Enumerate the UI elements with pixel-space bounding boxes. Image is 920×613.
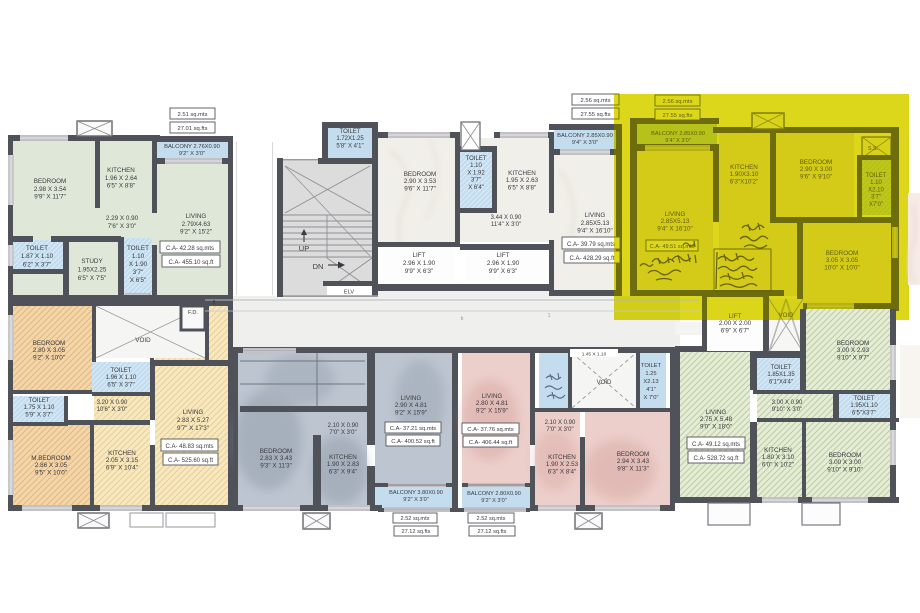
- svg-text:6'5" X 8'8": 6'5" X 8'8": [107, 183, 136, 190]
- svg-text:2.98 X 3.54: 2.98 X 3.54: [34, 186, 67, 193]
- svg-text:TOILET: TOILET: [771, 365, 792, 371]
- svg-text:3.00 X 3.00: 3.00 X 3.00: [829, 459, 862, 466]
- svg-text:9'7" X 17'3": 9'7" X 17'3": [177, 425, 209, 432]
- svg-text:2.85X5.13: 2.85X5.13: [581, 220, 610, 227]
- svg-text:27.12 sq.fts: 27.12 sq.fts: [402, 529, 431, 535]
- svg-text:1.72X1.25: 1.72X1.25: [336, 136, 364, 142]
- svg-text:LIVING: LIVING: [186, 213, 207, 220]
- svg-text:2.29 X 0.90: 2.29 X 0.90: [106, 215, 139, 222]
- svg-text:9'0" X 18'0": 9'0" X 18'0": [700, 423, 732, 430]
- svg-text:3.20 X 0.90: 3.20 X 0.90: [97, 400, 128, 406]
- svg-text:C.A- 37.76 sq.mts: C.A- 37.76 sq.mts: [467, 427, 513, 433]
- svg-text:2.94 X 3.43: 2.94 X 3.43: [617, 458, 650, 465]
- svg-text:2.90 X 4.81: 2.90 X 4.81: [395, 402, 428, 409]
- svg-text:27.12 sq.fts: 27.12 sq.fts: [478, 529, 507, 535]
- svg-text:6'5" X 3'7": 6'5" X 3'7": [107, 382, 134, 388]
- svg-text:6'2" X 3'7": 6'2" X 3'7": [23, 261, 52, 268]
- svg-text:9'8" X 11'3": 9'8" X 11'3": [617, 465, 649, 472]
- svg-text:6'5" X 7'5": 6'5" X 7'5": [78, 275, 107, 282]
- svg-text:UP: UP: [299, 244, 309, 253]
- svg-text:2.90 X 3.53: 2.90 X 3.53: [404, 178, 437, 185]
- svg-text:TOILET: TOILET: [127, 245, 149, 252]
- svg-text:2.79X4.63: 2.79X4.63: [182, 221, 211, 228]
- svg-text:X 6'5": X 6'5": [130, 277, 146, 284]
- svg-text:BEDROOM: BEDROOM: [617, 451, 650, 458]
- svg-text:7'6" X 3'0": 7'6" X 3'0": [108, 223, 137, 230]
- svg-text:1.96 X 2.64: 1.96 X 2.64: [105, 175, 138, 182]
- svg-text:2.51 sq.mts: 2.51 sq.mts: [178, 112, 208, 118]
- svg-text:1.75 X 1.10: 1.75 X 1.10: [24, 405, 55, 411]
- svg-text:1.45 X 1.10: 1.45 X 1.10: [582, 352, 607, 358]
- svg-text:C.A- 42.28 sq.mts: C.A- 42.28 sq.mts: [166, 246, 214, 252]
- svg-text:C.A- 49.12 sq.mts: C.A- 49.12 sq.mts: [692, 442, 740, 448]
- svg-text:2.86 X 3.05: 2.86 X 3.05: [35, 462, 68, 469]
- svg-text:9'9" X 6'3": 9'9" X 6'3": [405, 268, 434, 275]
- svg-text:6'3" X 9'4": 6'3" X 9'4": [329, 468, 358, 475]
- svg-text:LIVING: LIVING: [706, 409, 727, 416]
- svg-text:C.A- 400.52 sq.ft: C.A- 400.52 sq.ft: [391, 439, 435, 445]
- svg-text:9'10" X 9'7": 9'10" X 9'7": [837, 354, 869, 361]
- svg-text:X 1.92: X 1.92: [467, 170, 485, 176]
- svg-text:2.80 X 3.05: 2.80 X 3.05: [33, 347, 66, 354]
- svg-text:X 7'0": X 7'0": [643, 395, 658, 401]
- svg-text:1.80 X 3.10: 1.80 X 3.10: [762, 454, 795, 461]
- svg-text:BALCONY 2.76X0.90: BALCONY 2.76X0.90: [164, 144, 220, 150]
- svg-text:2.96 X 1.90: 2.96 X 1.90: [487, 260, 520, 267]
- svg-text:b: b: [461, 316, 464, 322]
- svg-text:C.A- 48.83 sq.mts: C.A- 48.83 sq.mts: [165, 444, 213, 450]
- svg-text:LIVING: LIVING: [482, 393, 503, 400]
- svg-text:9'2" X 3'0": 9'2" X 3'0": [481, 498, 506, 504]
- svg-text:9'2" X 10'0": 9'2" X 10'0": [33, 354, 65, 361]
- svg-text:2.10 X 0.90: 2.10 X 0.90: [328, 423, 359, 429]
- svg-text:5'9" X 3'7": 5'9" X 3'7": [25, 412, 52, 418]
- svg-text:9'3" X 11'3": 9'3" X 11'3": [260, 462, 292, 469]
- svg-text:2.83 X 5.27: 2.83 X 5.27: [177, 417, 210, 424]
- svg-text:TOILET: TOILET: [641, 363, 662, 369]
- svg-text:6'1"X4'4": 6'1"X4'4": [769, 379, 793, 385]
- svg-text:4'1": 4'1": [646, 387, 656, 393]
- svg-text:1.10: 1.10: [470, 163, 482, 169]
- svg-text:2.80 X 4.81: 2.80 X 4.81: [476, 400, 509, 407]
- svg-text:C.A- 428.29 sq.ft: C.A- 428.29 sq.ft: [569, 256, 614, 262]
- svg-text:6'9" X 6'7": 6'9" X 6'7": [721, 327, 750, 334]
- svg-text:X2.13: X2.13: [643, 379, 658, 385]
- svg-text:27.01 sq.fts: 27.01 sq.fts: [178, 126, 208, 132]
- svg-text:TOILET: TOILET: [111, 368, 132, 374]
- svg-text:9'2" X 15'2": 9'2" X 15'2": [180, 229, 212, 236]
- svg-text:F.D.: F.D.: [188, 310, 198, 316]
- svg-text:C.A- 455.10 sq.ft: C.A- 455.10 sq.ft: [168, 260, 213, 266]
- svg-text:6'0" X 10'2": 6'0" X 10'2": [762, 461, 794, 468]
- svg-text:LIVING: LIVING: [183, 409, 204, 416]
- svg-text:11'4" X 3'0": 11'4" X 3'0": [491, 222, 521, 228]
- svg-text:1.25: 1.25: [645, 371, 656, 377]
- svg-text:DN: DN: [313, 262, 324, 271]
- svg-text:BALCONY 2.80X0.90: BALCONY 2.80X0.90: [467, 491, 521, 497]
- svg-text:LIVING: LIVING: [401, 395, 422, 402]
- svg-text:KITCHEN: KITCHEN: [108, 450, 136, 457]
- svg-text:1: 1: [548, 313, 551, 319]
- svg-text:9'2" X 3'0": 9'2" X 3'0": [179, 151, 205, 157]
- svg-text:9'2" X 15'9": 9'2" X 15'9": [395, 409, 427, 416]
- svg-text:1.95X1.10: 1.95X1.10: [850, 403, 878, 409]
- svg-text:C.A- 525.60 sq.ft: C.A- 525.60 sq.ft: [168, 458, 213, 464]
- svg-text:BEDROOM: BEDROOM: [404, 171, 437, 178]
- svg-text:6'5"X3'7": 6'5"X3'7": [852, 410, 876, 416]
- svg-text:BEDROOM: BEDROOM: [33, 340, 66, 347]
- svg-text:9'4" X 3'0": 9'4" X 3'0": [572, 140, 598, 146]
- svg-text:9'9" X 6'3": 9'9" X 6'3": [489, 268, 518, 275]
- svg-text:9'9" X 11'7": 9'9" X 11'7": [34, 194, 66, 201]
- svg-text:M.BEDROOM: M.BEDROOM: [31, 455, 71, 462]
- svg-text:2.56 sq.mts: 2.56 sq.mts: [581, 98, 611, 104]
- svg-text:X 1.90: X 1.90: [129, 261, 148, 268]
- svg-text:LIVING: LIVING: [585, 212, 606, 219]
- svg-text:KITCHEN: KITCHEN: [548, 454, 576, 461]
- svg-text:9'10" X 3'0": 9'10" X 3'0": [772, 407, 803, 413]
- svg-text:2.52 sq.mts: 2.52 sq.mts: [477, 516, 506, 522]
- svg-text:2.05 X 3.15: 2.05 X 3.15: [106, 457, 139, 464]
- svg-text:TOILET: TOILET: [29, 398, 50, 404]
- svg-text:2.83 X 3.43: 2.83 X 3.43: [260, 455, 293, 462]
- svg-text:9'2" X 15'9": 9'2" X 15'9": [476, 407, 508, 414]
- svg-text:STUDY: STUDY: [81, 258, 103, 265]
- svg-text:3.00 X 2.93: 3.00 X 2.93: [837, 347, 870, 354]
- svg-text:3.44 X 0.90: 3.44 X 0.90: [491, 215, 522, 221]
- svg-text:C.A- 528.72 sq.ft: C.A- 528.72 sq.ft: [693, 456, 738, 462]
- svg-text:3'7": 3'7": [133, 269, 143, 276]
- svg-text:6'9" X 10'4": 6'9" X 10'4": [106, 464, 138, 471]
- svg-text:1.85X1.35: 1.85X1.35: [767, 372, 795, 378]
- svg-text:C.A- 406.44 sq.ft: C.A- 406.44 sq.ft: [469, 440, 513, 446]
- svg-text:ELV: ELV: [344, 290, 354, 296]
- svg-text:1.87 X 1.10: 1.87 X 1.10: [21, 253, 54, 260]
- svg-text:VOID: VOID: [597, 380, 612, 386]
- svg-text:6'3" X 8'4": 6'3" X 8'4": [548, 468, 577, 475]
- svg-text:3'7": 3'7": [471, 178, 481, 184]
- svg-text:BALCONY 3.80X0.90: BALCONY 3.80X0.90: [389, 490, 443, 496]
- svg-text:C.A- 39.79 sq.mts: C.A- 39.79 sq.mts: [567, 242, 615, 248]
- svg-text:LIFT: LIFT: [413, 252, 426, 259]
- svg-text:1.10: 1.10: [132, 253, 145, 260]
- svg-text:2.75 X 5.48: 2.75 X 5.48: [700, 416, 733, 423]
- svg-text:1.96 X 1.10: 1.96 X 1.10: [106, 375, 137, 381]
- svg-text:VOID: VOID: [135, 337, 151, 344]
- svg-text:TOILET: TOILET: [26, 245, 48, 252]
- svg-text:BEDROOM: BEDROOM: [829, 452, 862, 459]
- svg-text:10'6" X 3'0": 10'6" X 3'0": [97, 407, 128, 413]
- svg-text:3.00 X 0.90: 3.00 X 0.90: [772, 400, 803, 406]
- svg-text:6'5" X 8'8": 6'5" X 8'8": [508, 184, 537, 191]
- svg-text:9'6" X 11'7": 9'6" X 11'7": [404, 185, 436, 192]
- svg-text:KITCHEN: KITCHEN: [107, 167, 135, 174]
- svg-text:TOILET: TOILET: [340, 129, 361, 135]
- svg-text:2.10 X 0.90: 2.10 X 0.90: [545, 420, 576, 426]
- svg-text:2.52 sq.mts: 2.52 sq.mts: [401, 516, 430, 522]
- svg-text:5'8" X 4'1": 5'8" X 4'1": [336, 143, 363, 149]
- svg-text:KITCHEN: KITCHEN: [508, 170, 536, 177]
- svg-text:2.96 X 1.90: 2.96 X 1.90: [403, 260, 436, 267]
- svg-text:9'4" X 16'10": 9'4" X 16'10": [577, 228, 613, 235]
- svg-text:KITCHEN: KITCHEN: [764, 447, 792, 454]
- svg-text:9'5" X 10'0": 9'5" X 10'0": [35, 469, 67, 476]
- svg-text:7'0" X 3'0": 7'0" X 3'0": [329, 430, 356, 436]
- svg-text:KITCHEN: KITCHEN: [329, 454, 357, 461]
- svg-text:TOILET: TOILET: [854, 396, 875, 402]
- svg-text:1.90 X 2.83: 1.90 X 2.83: [327, 461, 360, 468]
- svg-text:C.A- 37.21 sq.mts: C.A- 37.21 sq.mts: [390, 426, 436, 432]
- svg-text:7'0" X 3'0": 7'0" X 3'0": [546, 427, 573, 433]
- svg-text:27.55 sq.fts: 27.55 sq.fts: [581, 112, 611, 118]
- svg-text:1.95X2.25: 1.95X2.25: [78, 267, 107, 274]
- svg-text:BEDROOM: BEDROOM: [34, 178, 67, 185]
- svg-text:9'2" X 3'0": 9'2" X 3'0": [403, 497, 428, 503]
- svg-text:LIFT: LIFT: [497, 252, 510, 259]
- svg-text:BEDROOM: BEDROOM: [260, 448, 293, 455]
- svg-text:1.90 X 2.53: 1.90 X 2.53: [546, 461, 579, 468]
- svg-text:8: 8: [213, 300, 216, 306]
- svg-text:1.95 X 2.63: 1.95 X 2.63: [506, 177, 539, 184]
- svg-text:BEDROOM: BEDROOM: [837, 340, 870, 347]
- svg-text:2.00 X 2.00: 2.00 X 2.00: [719, 320, 752, 327]
- svg-text:9'10" X 9'10": 9'10" X 9'10": [827, 466, 863, 473]
- svg-text:BALCONY 2.85X0.90: BALCONY 2.85X0.90: [557, 133, 613, 139]
- svg-text:TOILET: TOILET: [466, 156, 487, 162]
- svg-text:X 6'4": X 6'4": [468, 185, 484, 191]
